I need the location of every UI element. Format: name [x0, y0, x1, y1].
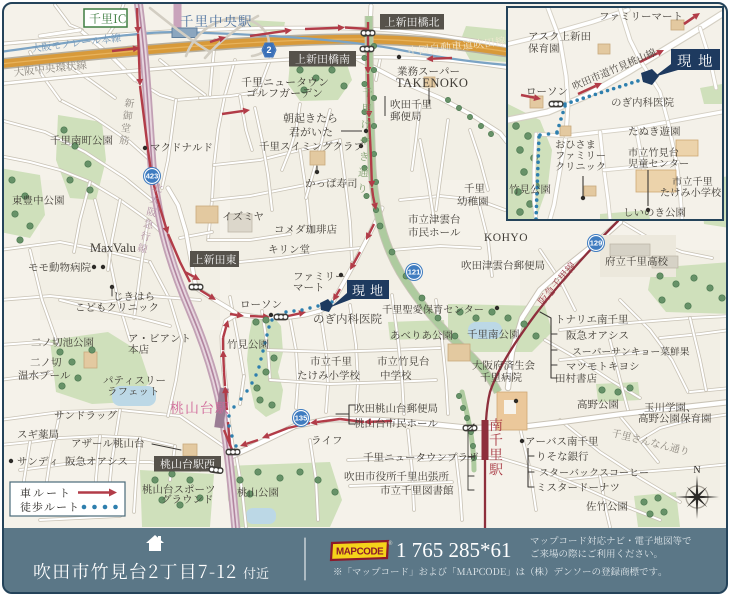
svg-text:MaxValu: MaxValu — [90, 241, 137, 255]
svg-text:129: 129 — [590, 239, 603, 248]
svg-text:135: 135 — [295, 414, 308, 423]
svg-text:1 765 285*61: 1 765 285*61 — [396, 538, 512, 562]
svg-text:2: 2 — [266, 45, 271, 55]
svg-text:121: 121 — [408, 268, 421, 277]
svg-text:TAKENOKO: TAKENOKO — [396, 76, 468, 90]
svg-text:KOHYO: KOHYO — [484, 232, 528, 244]
svg-text:423: 423 — [146, 172, 159, 181]
svg-text:®: ® — [388, 540, 393, 547]
svg-text:N: N — [693, 465, 700, 476]
svg-text:MAPCODE: MAPCODE — [336, 547, 384, 558]
